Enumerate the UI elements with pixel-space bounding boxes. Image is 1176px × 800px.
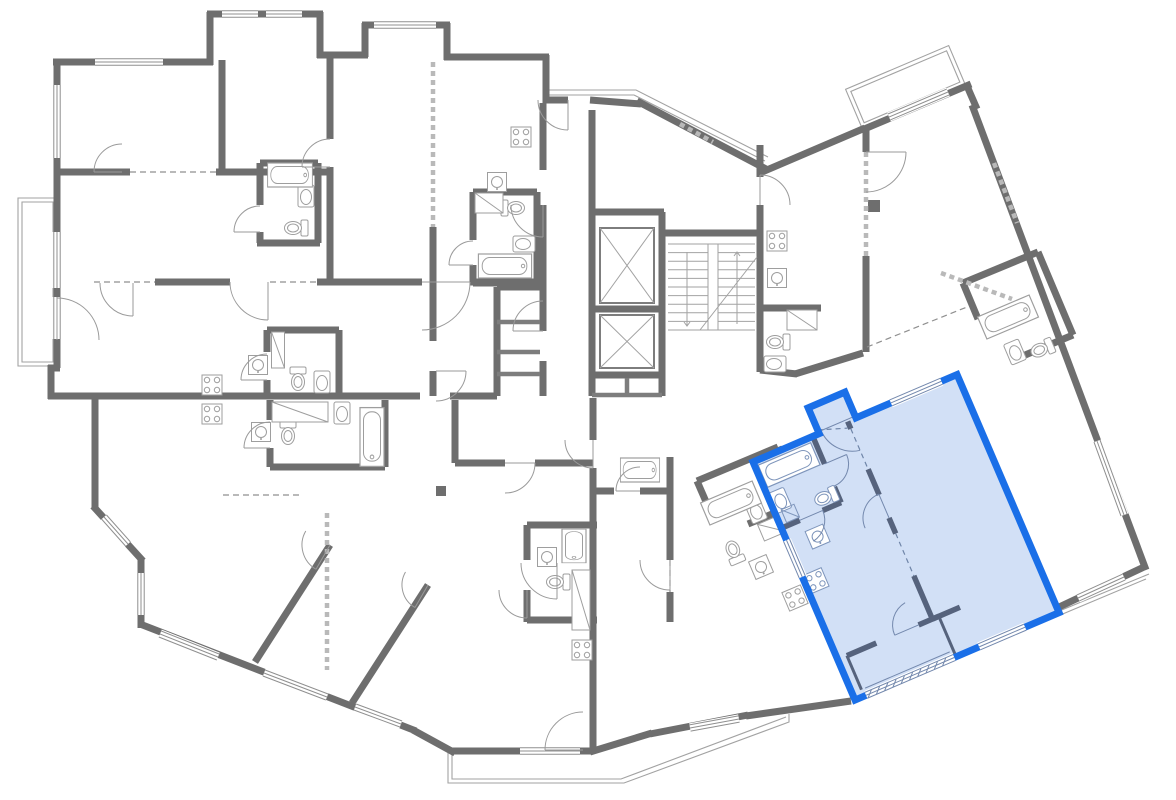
floor-plan-page	[0, 0, 1176, 800]
elevator-shafts	[600, 228, 654, 368]
floor-plan-svg	[0, 0, 1176, 800]
core-layer	[600, 228, 757, 368]
balconies-layer	[18, 46, 1149, 783]
highlighted-apartment[interactable]	[739, 349, 1060, 704]
stairs	[668, 244, 757, 330]
balcony-outline	[846, 46, 966, 128]
